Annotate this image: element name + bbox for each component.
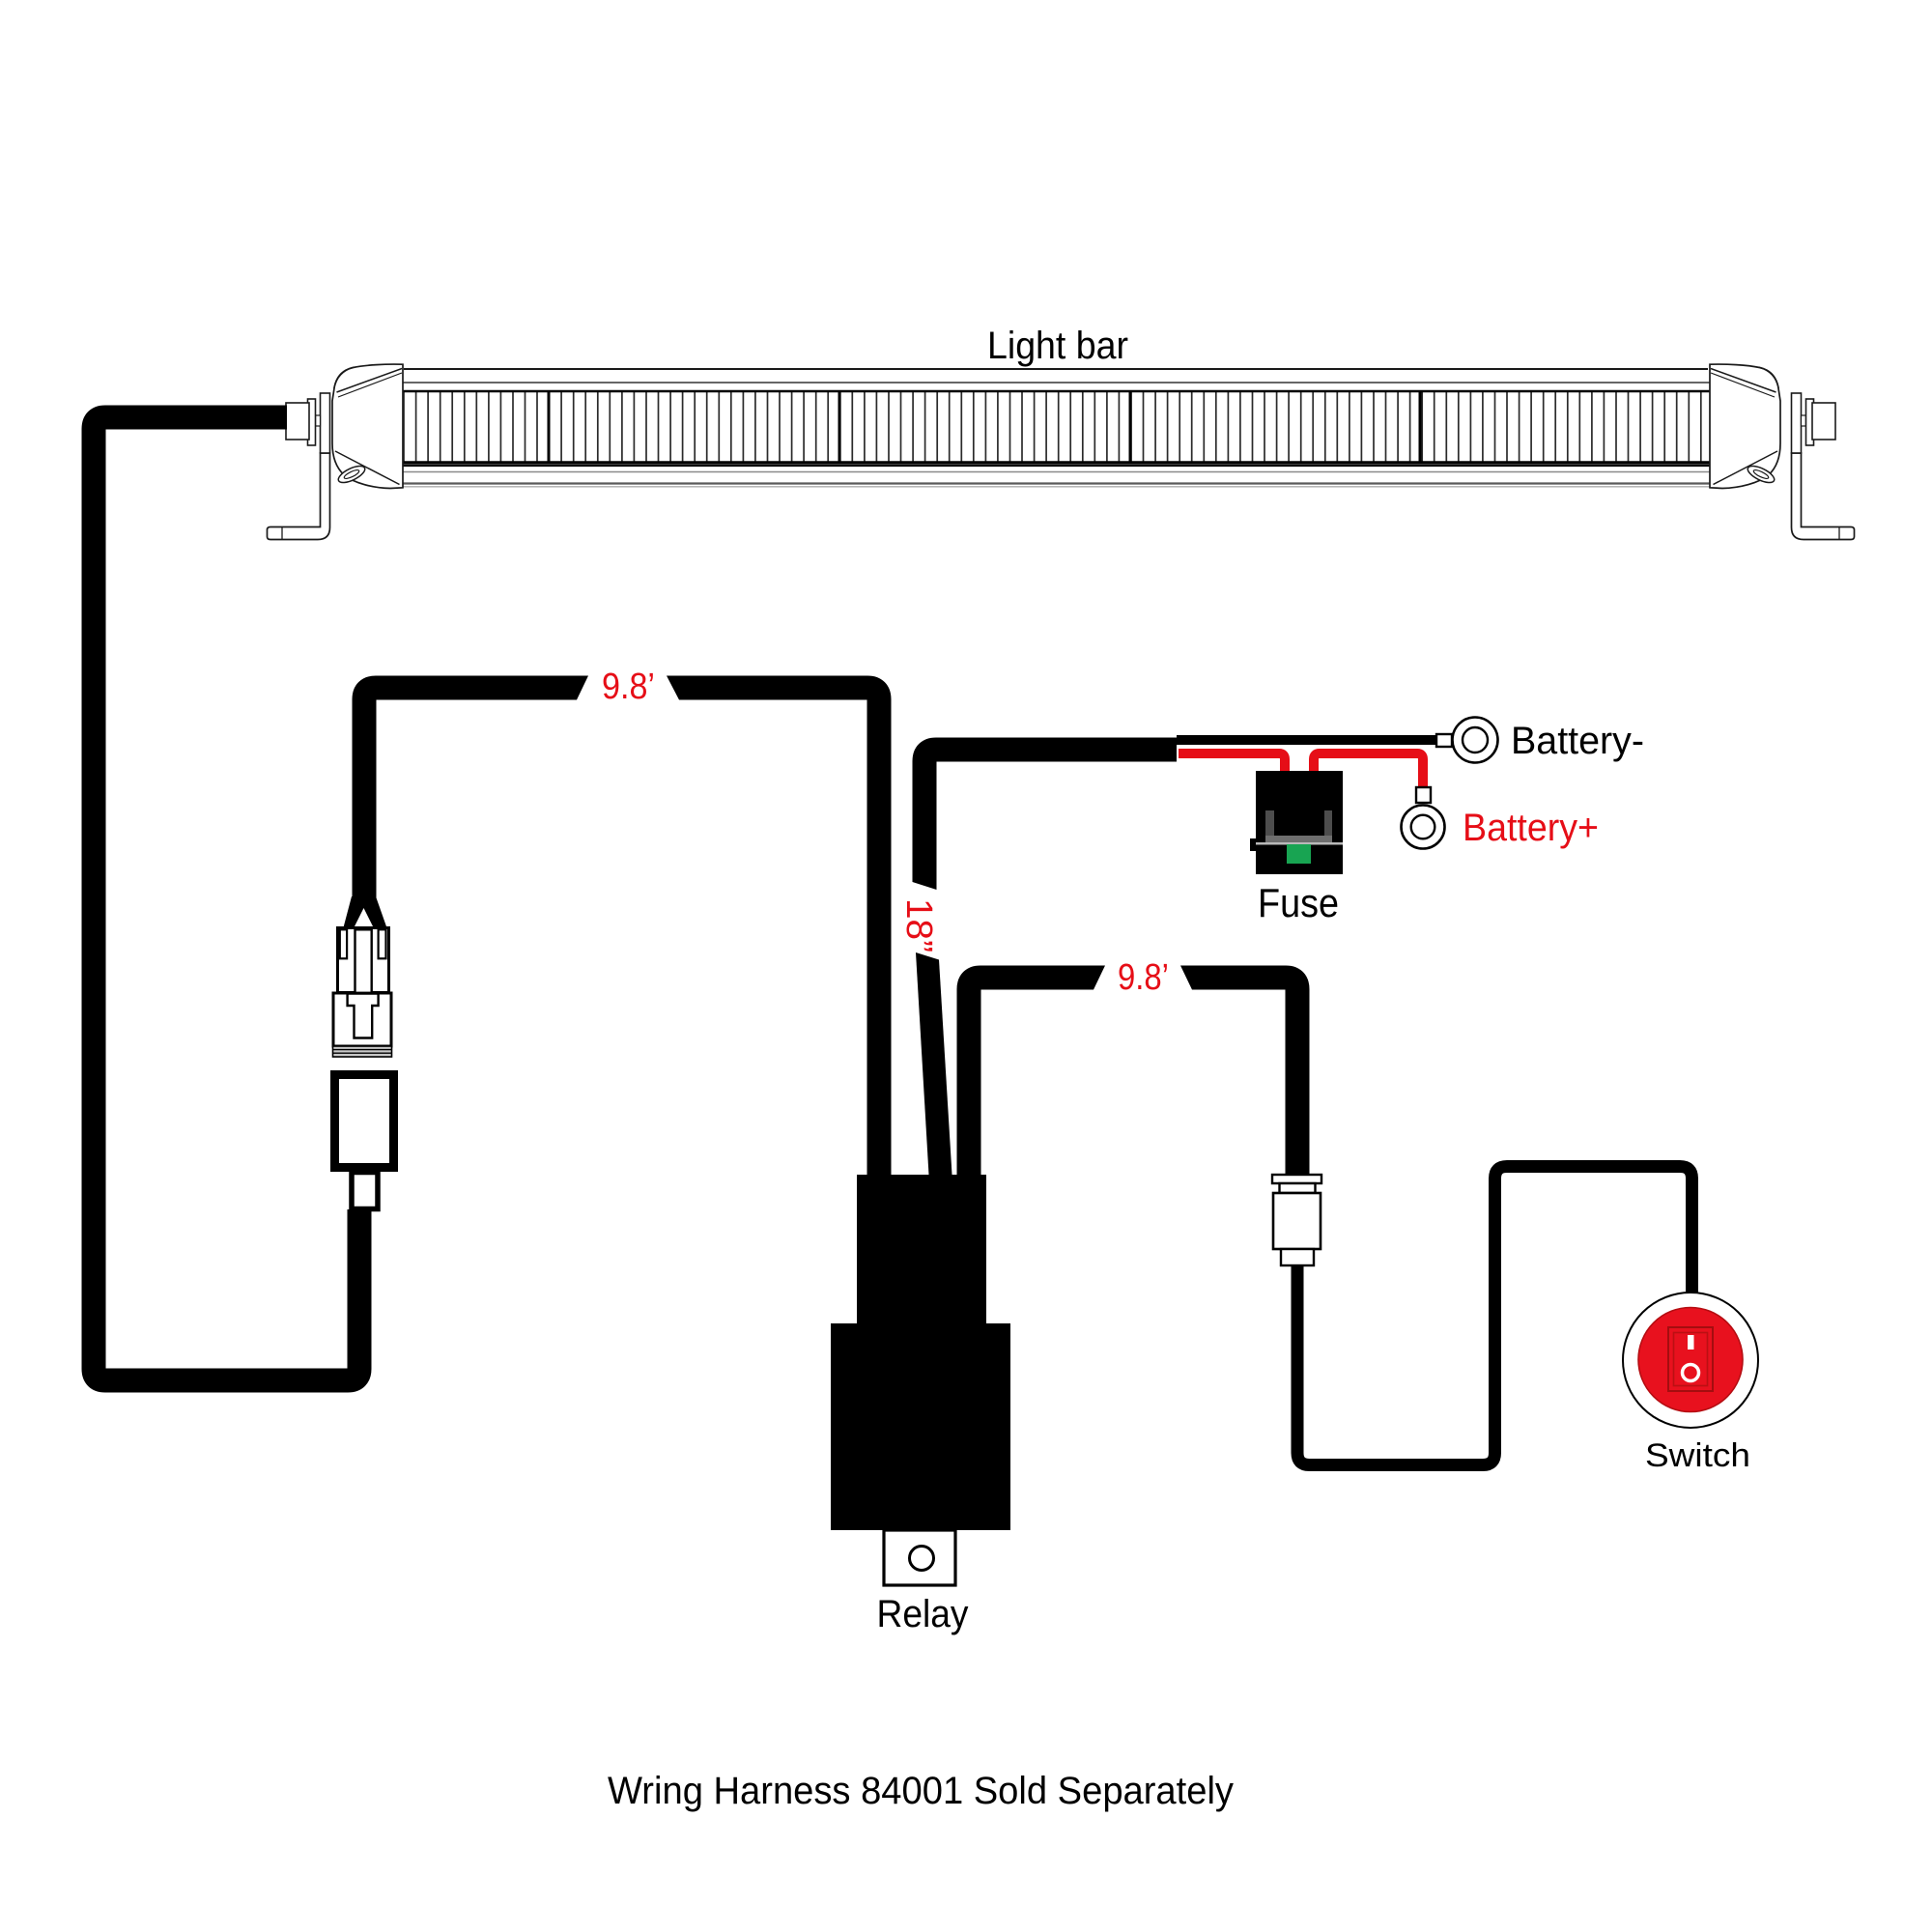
svg-text:Light bar: Light bar	[987, 325, 1128, 367]
svg-text:Battery+: Battery+	[1463, 807, 1599, 849]
svg-text:9.8’: 9.8’	[602, 667, 655, 707]
svg-text:18”: 18”	[898, 898, 939, 952]
svg-text:Fuse: Fuse	[1258, 880, 1339, 925]
svg-text:9.8’: 9.8’	[1118, 957, 1169, 998]
svg-text:Relay: Relay	[877, 1593, 969, 1635]
svg-text:Battery-: Battery-	[1511, 720, 1644, 762]
svg-text:Wring Harness 84001 Sold Separ: Wring Harness 84001 Sold Separately	[608, 1770, 1234, 1812]
svg-text:Switch: Switch	[1645, 1437, 1750, 1474]
